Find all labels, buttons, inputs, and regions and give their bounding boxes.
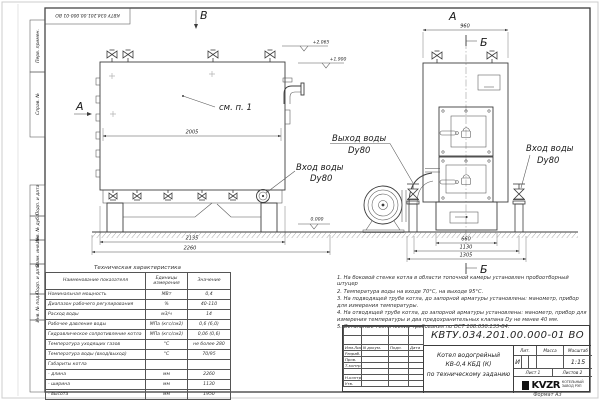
fan-blower [363, 186, 406, 233]
spec-name: Температура воды (вход/выход) [46, 350, 146, 360]
spec-row: Расход водым3/ч14 [46, 310, 231, 320]
spec-name: Гидравлическое сопротивление котла [46, 330, 146, 340]
spec-unit: % [146, 300, 188, 310]
ground-line [92, 232, 578, 238]
view-label-a-side: А [75, 100, 84, 113]
doc-number-top: КВТУ 034.201.00.000-01 ВО [55, 12, 120, 18]
spec-header-unit: Единицы измерения [146, 273, 188, 290]
spec-value: 0,06 (0,6) [188, 330, 231, 340]
inlet-front-dn: Dy80 [537, 156, 559, 166]
title-block-doc-number: КВТУ.034.201.00.000-01 ВО [423, 326, 591, 346]
spec-value: 0,6 (6,0) [188, 320, 231, 330]
spec-table: Наименование показателя Единицы измерени… [45, 272, 231, 400]
rev-cell [362, 381, 389, 387]
sheets-label: Листов [563, 370, 579, 375]
rev-label-razrab: Разраб. [344, 351, 362, 357]
spec-unit: м3/ч [146, 310, 188, 320]
technical-notes: 1. На боковой стенке котла в области топ… [337, 275, 588, 332]
spec-row: - длинамм2260 [46, 370, 231, 380]
spec-unit: МВт [146, 290, 188, 300]
spec-name: Температура уходящих газов [46, 340, 146, 350]
spec-value: 1130 [188, 380, 231, 390]
inlet-side-dn: Dy80 [310, 174, 332, 184]
side-wall-fittings [96, 78, 100, 177]
sheet-value: 1 [538, 370, 541, 375]
kvzr-logo-icon [522, 381, 529, 390]
note-1: 1. На боковой стенке котла в области топ… [337, 275, 588, 288]
inlet-side-text: Вход воды [296, 163, 344, 173]
company-name-line2: ЗАВОД РЭП [562, 385, 584, 389]
drawing-sheet: .ln{stroke:#3d3d3d;stroke-width:0.9;fill… [0, 0, 600, 400]
spec-row: - ширинамм1130 [46, 380, 231, 390]
dim-body-length: 2005 [186, 130, 199, 136]
dim-valve-span: 1130 [460, 245, 473, 251]
boiler-title-line3: по техническому заданию [424, 370, 513, 379]
section-b-top-label: Б [480, 36, 488, 49]
stamp-podp-data-2: Подп. и дата [35, 263, 41, 294]
spec-value [188, 360, 231, 370]
rev-cell [389, 381, 409, 387]
kvzr-logo-text: KVZR [531, 380, 559, 391]
rev-header-izm: Изм.Лист [344, 345, 362, 351]
section-b-top: Б [466, 35, 488, 49]
spec-row: Номинальная мощностьМВт0,4 [46, 290, 231, 300]
sheet-label: Лист [526, 370, 537, 375]
outlet-pipe-elbow [283, 78, 304, 124]
boiler-title-line1: Котел водогрейный [424, 351, 513, 360]
sheets-cell: Листов 2 [553, 369, 592, 377]
rev-label-utv: Утв. [344, 381, 362, 387]
outlet-label: Выход воды Dy80 [330, 134, 413, 183]
inlet-valve [513, 184, 525, 232]
spec-name: Рабочее давление воды [46, 320, 146, 330]
stamp-perv-primen: Перв. примен. [35, 29, 41, 63]
note-4: 4. На отводящей трубе котла, до запорной… [337, 310, 588, 323]
dim-total-length: 2260 [184, 246, 197, 252]
lit-cell-3 [529, 356, 537, 369]
spec-row: Температура уходящих газов°Сне более 280 [46, 340, 231, 350]
spec-unit: мм [146, 370, 188, 380]
spec-name: Расход воды [46, 310, 146, 320]
lit-cell-2 [522, 356, 529, 369]
spec-name: - высота [46, 390, 146, 400]
mass-label: Масса [537, 346, 564, 356]
stamp-vzam-inv: Взам. инв. № [35, 236, 41, 267]
note-2: 2. Температура воды на входе 70°С, на вы… [337, 289, 588, 295]
spec-row: Габариты котла [46, 360, 231, 370]
spec-value: 1950 [188, 390, 231, 400]
stamp-inv-podl: Инв. № подл. [35, 291, 41, 322]
spec-name: Габариты котла [46, 360, 146, 370]
elevation-ground: 0.000 [311, 217, 324, 223]
stamp-sprav-no: Справ. № [35, 93, 41, 115]
company-logo-row: KVZR КОТЕЛЬНЫЙ ЗАВОД РЭП [514, 377, 592, 393]
rev-cell [409, 327, 424, 336]
spec-header-name: Наименование показателя [46, 273, 146, 290]
spec-unit: мм [146, 390, 188, 400]
spec-row: Рабочее давление водыМПа (кгс/см2)0,6 (6… [46, 320, 231, 330]
view-label-a-front: А [448, 10, 457, 23]
revision-table: Изм.ЛистN докум.Подп.Дата Разраб. Пров. … [343, 326, 424, 387]
sheets-value: 2 [580, 370, 583, 375]
see-note-label: см. п. 1 [219, 103, 252, 113]
scale-label: Масштаб [564, 346, 592, 356]
spec-value: 70/95 [188, 350, 231, 360]
margin-stamps: Перв. примен. Справ. № Подп. и дата Инв.… [30, 20, 45, 392]
format-label: Формат А3 [505, 392, 590, 398]
spec-name: - длина [46, 370, 146, 380]
inspection-marks [109, 71, 215, 117]
title-block-description: Котел водогрейный КВ-0,4 КБД (К) по техн… [423, 346, 513, 393]
outlet-text: Выход воды [332, 134, 386, 144]
spec-unit: °С [146, 350, 188, 360]
spec-value: не более 280 [188, 340, 231, 350]
spec-unit: °С [146, 340, 188, 350]
dim-front-width: 960 [460, 24, 470, 30]
rev-cell [389, 327, 409, 336]
outlet-dn: Dy80 [348, 146, 370, 156]
spec-row: Гидравлическое сопротивление котлаМПа (к… [46, 330, 231, 340]
rev-label-nkontr: Н.контр. [344, 375, 362, 381]
title-block: КВТУ.034.201.00.000-01 ВО Изм.ЛистN доку… [342, 325, 590, 392]
spec-name: Номинальная мощность [46, 290, 146, 300]
inlet-front-label: Вход воды Dy80 [521, 144, 574, 188]
spec-table-title: Техническая характеристика [45, 265, 230, 271]
spec-value: 2260 [188, 370, 231, 380]
rev-cell [389, 336, 409, 345]
lit-mass-scale-section: Лит. Масса Масштаб И 1:15 Лист 1 Листов … [513, 346, 591, 393]
boiler-title-line2: КВ-0,4 КБД (К) [424, 360, 513, 369]
inlet-front-text: Вход воды [526, 144, 574, 154]
spec-unit: МПа (кгс/см2) [146, 320, 188, 330]
spec-name: Диапазон рабочего регулирования [46, 300, 146, 310]
rev-label-tkontr: Т.контр. [344, 363, 362, 369]
spec-unit: МПа (кгс/см2) [146, 330, 188, 340]
rev-cell [362, 327, 389, 336]
rev-cell [362, 336, 389, 345]
scale-value: 1:15 [564, 356, 592, 369]
spec-row: - высотамм1950 [46, 390, 231, 400]
company-name: КОТЕЛЬНЫЙ ЗАВОД РЭП [562, 381, 584, 389]
see-note-callout: см. п. 1 [182, 95, 252, 113]
view-label-b: В [200, 9, 208, 22]
inlet-side-label: Вход воды Dy80 [266, 163, 344, 193]
rev-cell [344, 336, 362, 345]
spec-value: 40-110 [188, 300, 231, 310]
elevation-pipe-top: +2.065 [313, 40, 330, 46]
rev-cell [409, 381, 424, 387]
note-3: 3. На подводящей трубе котла, до запорно… [337, 296, 588, 309]
lit-value: И [514, 356, 522, 369]
spec-table-section: Техническая характеристика Наименование … [45, 265, 230, 400]
spec-value: 0,4 [188, 290, 231, 300]
sheet-cell: Лист 1 [514, 369, 553, 377]
spec-name: - ширина [46, 380, 146, 390]
rev-cell [409, 336, 424, 345]
mass-value [537, 356, 564, 369]
spec-unit [146, 360, 188, 370]
spec-row: Температура воды (вход/выход)°С70/95 [46, 350, 231, 360]
spec-header-value: Значение [188, 273, 231, 290]
lit-label: Лит. [514, 346, 537, 356]
dim-total-width: 1305 [460, 253, 473, 259]
spec-value: 14 [188, 310, 231, 320]
side-inlet-flange [257, 190, 270, 203]
elevation-pipe-mid: +1.900 [330, 57, 347, 63]
boiler-side-view: см. п. 1 2005 2135 2260 В А +2.065 +1.90… [74, 9, 346, 255]
pedestal [436, 202, 497, 230]
spec-unit: мм [146, 380, 188, 390]
spec-row: Диапазон рабочего регулирования%40-110 [46, 300, 231, 310]
outlet-valve [407, 184, 419, 232]
stamp-podp-data-1: Подп. и дата [35, 184, 41, 215]
rev-cell [344, 327, 362, 336]
